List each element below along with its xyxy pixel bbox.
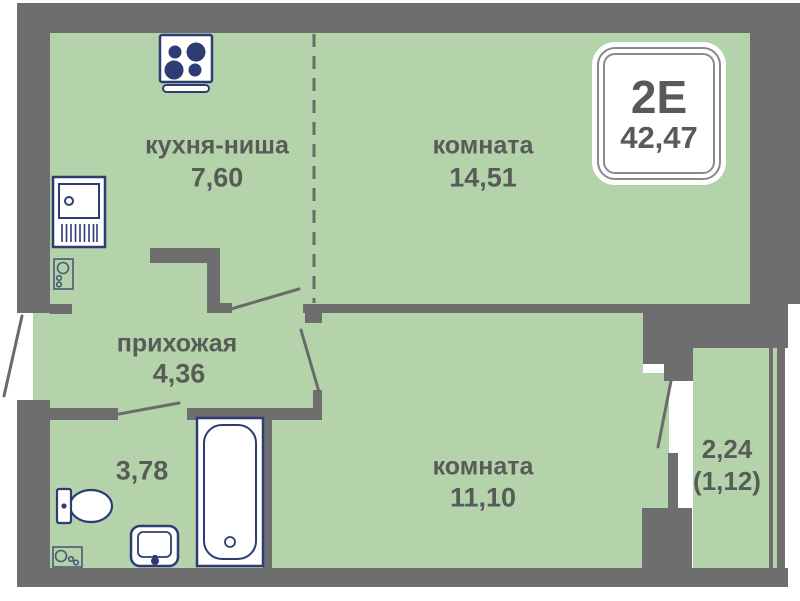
hallway-area: 4,36 (153, 361, 206, 388)
washbasin-icon (131, 526, 178, 566)
vent-shaft-icon (53, 547, 82, 567)
bedroom-door-swing-line (301, 330, 319, 392)
apartment-badge: 2Е 42,47 (597, 47, 721, 180)
bedroom-label: комната (433, 455, 534, 480)
hallway-label: прихожая (117, 332, 237, 357)
stove-icon (160, 35, 212, 92)
bedroom-area: 11,10 (450, 485, 516, 512)
kitchen-sink-icon (53, 177, 105, 247)
living-room-area: 14,51 (449, 165, 517, 192)
apartment-badge-frame: 2Е 42,47 (603, 53, 715, 174)
apartment-total-area: 42,47 (620, 122, 698, 153)
vent-shaft-icon (54, 259, 73, 289)
balcony-door-swing-line (658, 381, 671, 447)
kitchen-door-swing-line (231, 289, 299, 309)
balcony-area: 2,24 (702, 436, 753, 462)
kitchen-area: 7,60 (191, 165, 244, 192)
apartment-type: 2Е (631, 74, 687, 120)
balcony-area-coefficient: (1,12) (693, 468, 761, 494)
kitchen-label: кухня-ниша (145, 134, 289, 159)
living-room-label: комната (433, 134, 534, 159)
bathroom-area: 3,78 (116, 458, 169, 485)
entrance-door-swing-line (4, 316, 22, 396)
bathtub-icon (197, 418, 263, 566)
toilet-icon (57, 489, 112, 523)
bathroom-door-swing-line (119, 403, 179, 414)
floor-plan: кухня-ниша 7,60 комната 14,51 прихожая 4… (0, 0, 800, 601)
